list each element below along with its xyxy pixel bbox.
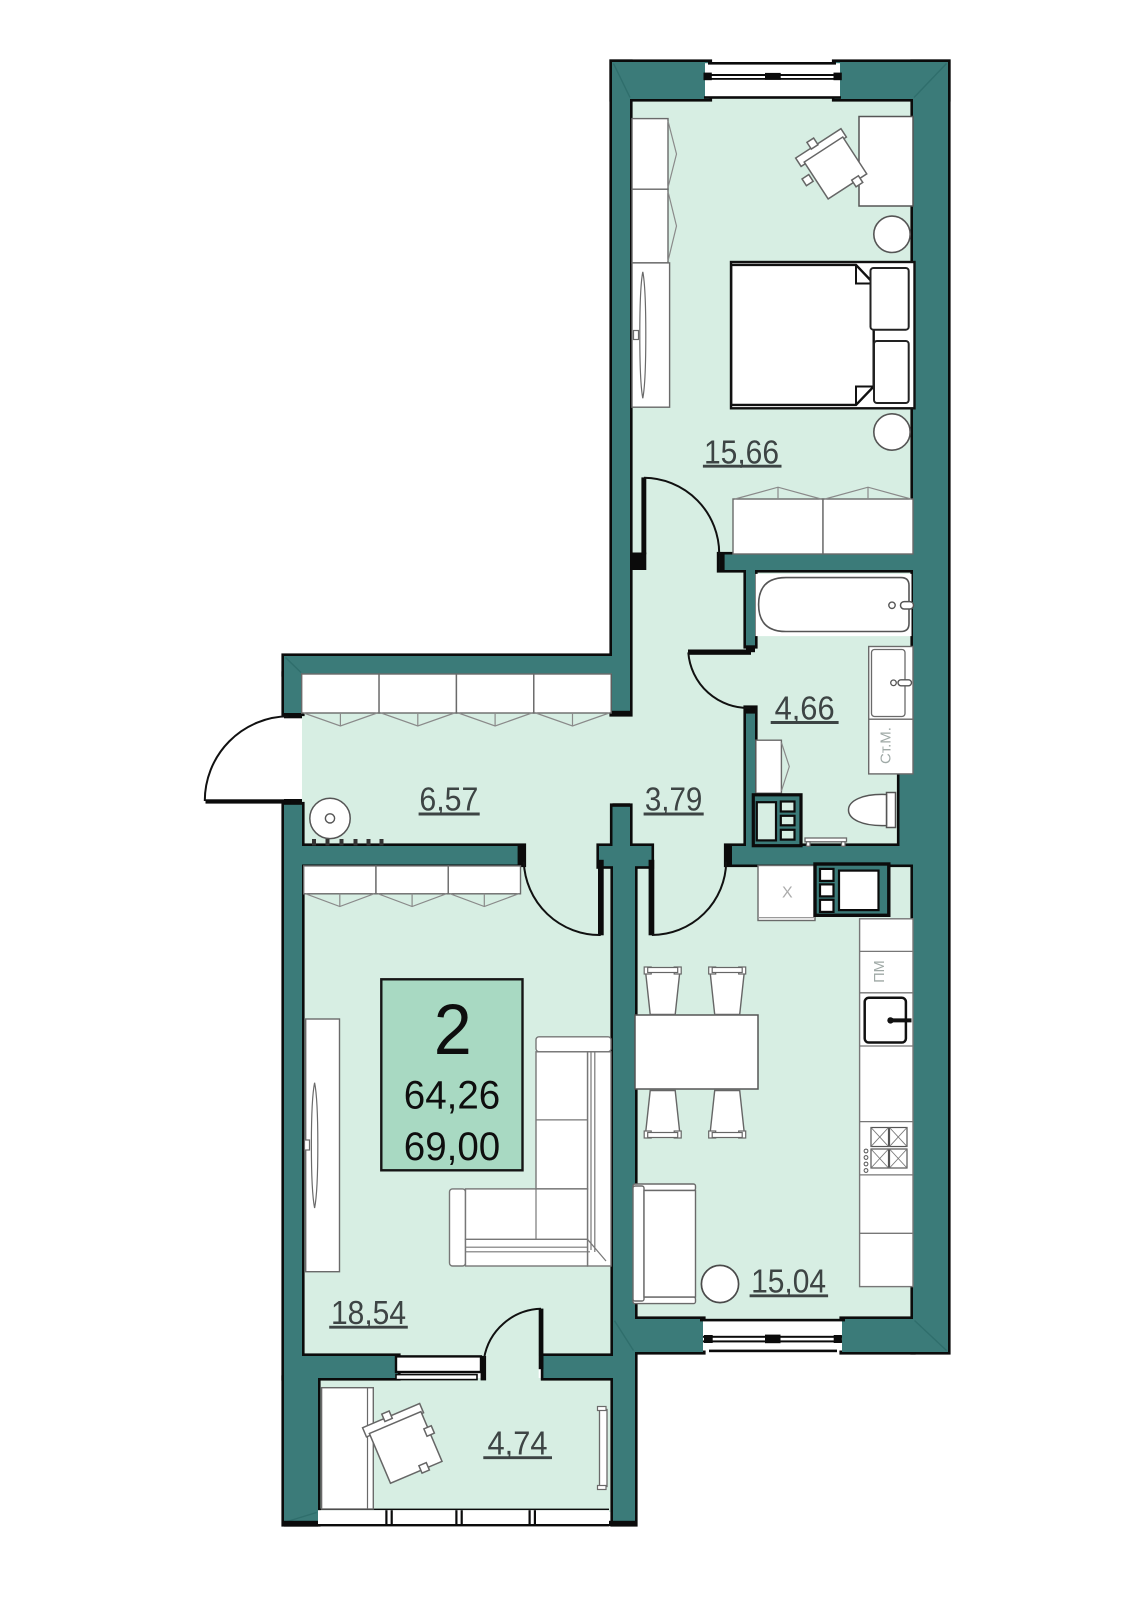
- svg-text:X: X: [782, 885, 793, 902]
- svg-text:ПМ: ПМ: [872, 960, 888, 983]
- svg-text:Ст.М.: Ст.М.: [878, 727, 895, 764]
- svg-text:64,26: 64,26: [404, 1074, 501, 1118]
- svg-text:2: 2: [434, 991, 472, 1070]
- svg-text:69,00: 69,00: [404, 1125, 501, 1169]
